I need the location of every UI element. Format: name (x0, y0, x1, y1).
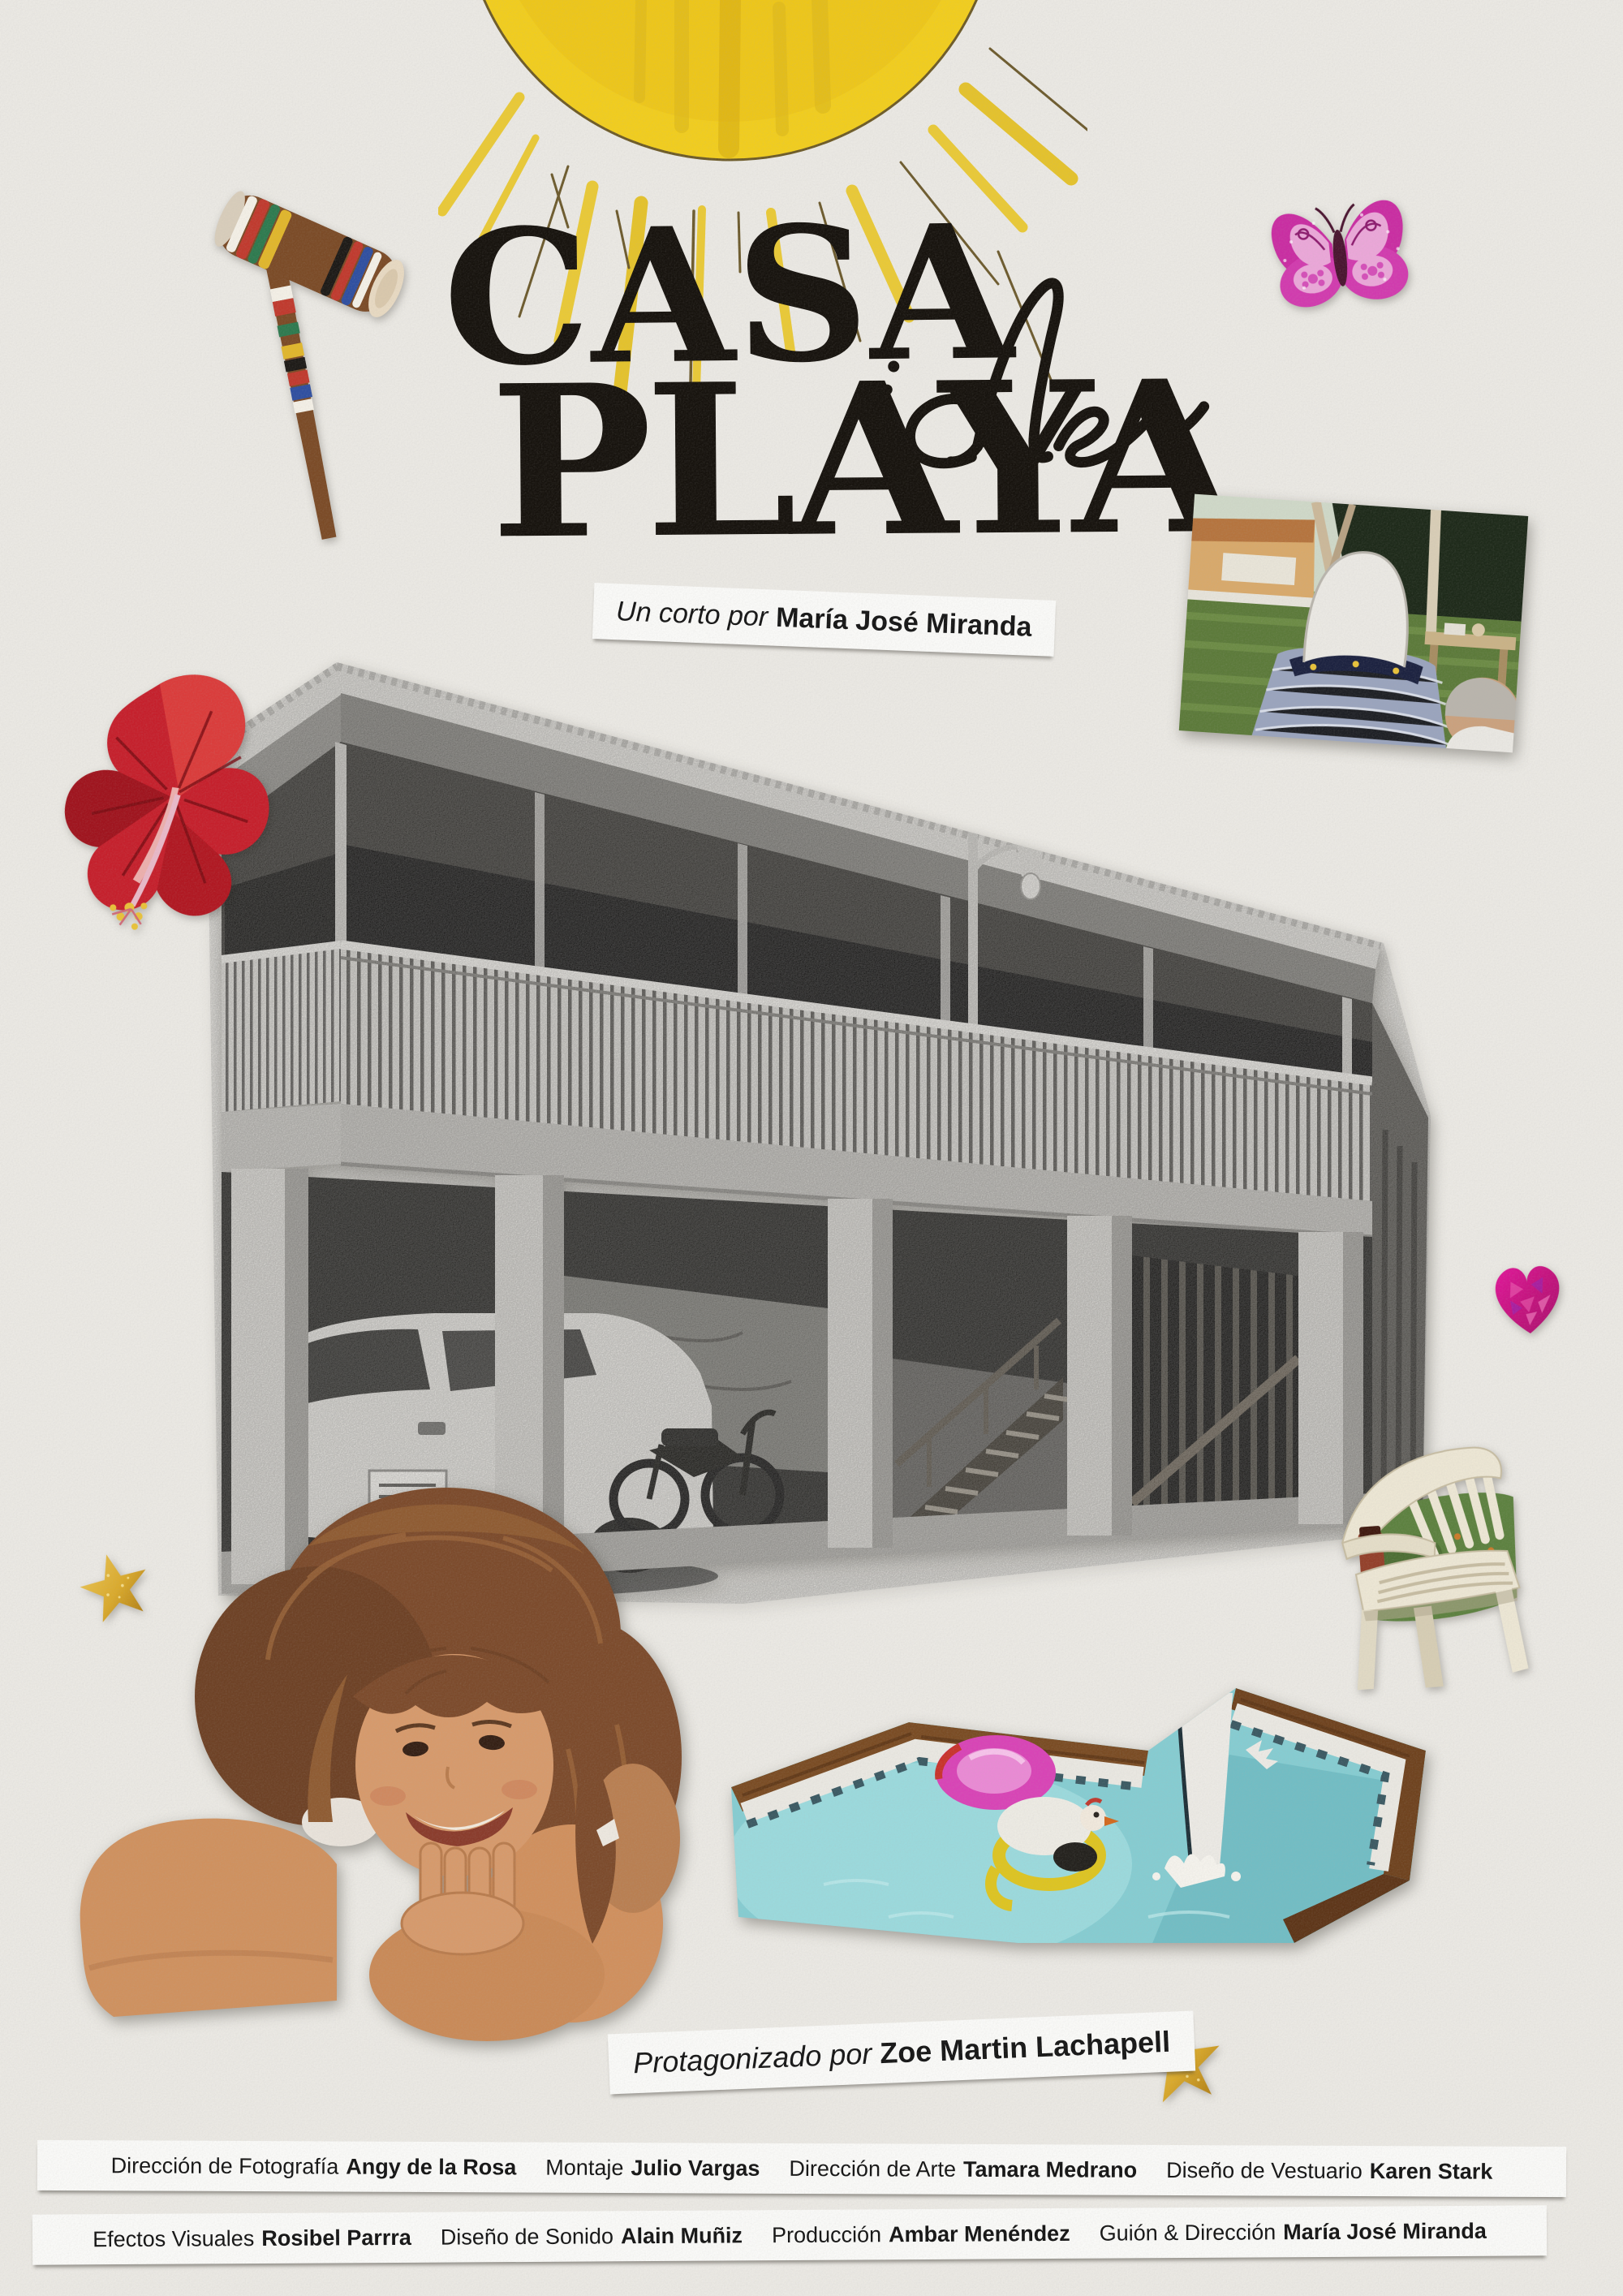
starring-prefix: Protagonizado por (632, 2036, 872, 2080)
title-line-2: PLAYA (489, 353, 1233, 567)
party-photo (1179, 494, 1528, 753)
butterfly-sticker-icon (1261, 173, 1416, 321)
heart-sticker-icon (1485, 1258, 1571, 1341)
byline-name: María José Miranda (775, 602, 1032, 644)
poster: CASA PLAYA Un corto por María José Miran… (0, 0, 1623, 2296)
credit-item: ProducciónAmbar Menéndez (772, 2221, 1070, 2247)
credit-item: Efectos VisualesRosibel Parrra (93, 2225, 411, 2251)
credits-bar-2: Efectos VisualesRosibel Parrra Diseño de… (32, 2205, 1547, 2264)
girl-photo (65, 1481, 682, 2057)
croquet-mallet-photo (191, 114, 426, 544)
credits-bar-1: Dirección de FotografíaAngy de la Rosa M… (37, 2140, 1566, 2197)
credit-item: Guión & DirecciónMaría José Miranda (1100, 2218, 1487, 2246)
credit-item: MontajeJulio Vargas (545, 2155, 760, 2181)
hibiscus-flower-icon (37, 655, 308, 947)
credit-item: Diseño de VestuarioKaren Stark (1166, 2157, 1492, 2184)
credit-item: Dirección de ArteTamara Medrano (789, 2156, 1137, 2182)
beach-house-photo (174, 659, 1444, 1617)
pool-photo (726, 1674, 1440, 1954)
byline-strip: Un corto por María José Miranda (592, 583, 1056, 657)
byline-prefix: Un corto por (615, 596, 768, 633)
chair-photo (1304, 1426, 1548, 1697)
credit-item: Diseño de SonidoAlain Muñiz (441, 2223, 743, 2250)
starring-strip: Protagonizado por Zoe Martin Lachapell (608, 2011, 1196, 2095)
credit-item: Dirección de FotografíaAngy de la Rosa (111, 2153, 517, 2180)
starring-name: Zoe Martin Lachapell (879, 2025, 1170, 2070)
